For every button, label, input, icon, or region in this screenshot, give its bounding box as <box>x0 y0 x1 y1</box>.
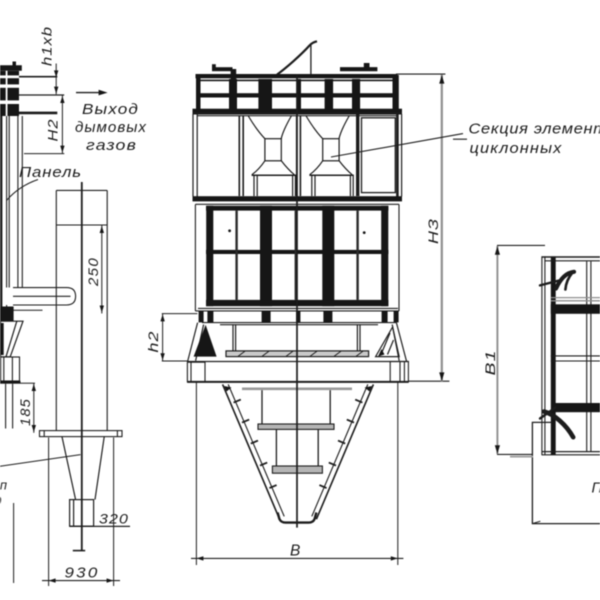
svg-text:185: 185 <box>17 398 33 426</box>
svg-text:h1xb: h1xb <box>40 26 55 66</box>
svg-text:циклонных: циклонных <box>470 141 563 157</box>
svg-text:газов: газов <box>86 137 137 154</box>
svg-text:Н2: Н2 <box>46 119 61 142</box>
svg-text:мп: мп <box>0 478 7 493</box>
svg-text:250: 250 <box>85 257 101 287</box>
svg-text:В: В <box>290 543 300 560</box>
svg-text:h2: h2 <box>146 331 161 353</box>
svg-text:Секция элементов: Секция элементов <box>469 122 600 138</box>
svg-text:Пр: Пр <box>592 480 600 497</box>
svg-text:НЗ: НЗ <box>425 218 441 244</box>
svg-text:В1: В1 <box>482 350 498 376</box>
svg-text:Выход: Выход <box>82 101 139 118</box>
svg-text:дымовых: дымовых <box>75 119 147 136</box>
svg-text:930: 930 <box>65 565 100 582</box>
svg-text:Панель: Панель <box>19 164 82 181</box>
svg-text:0: 0 <box>0 494 2 509</box>
